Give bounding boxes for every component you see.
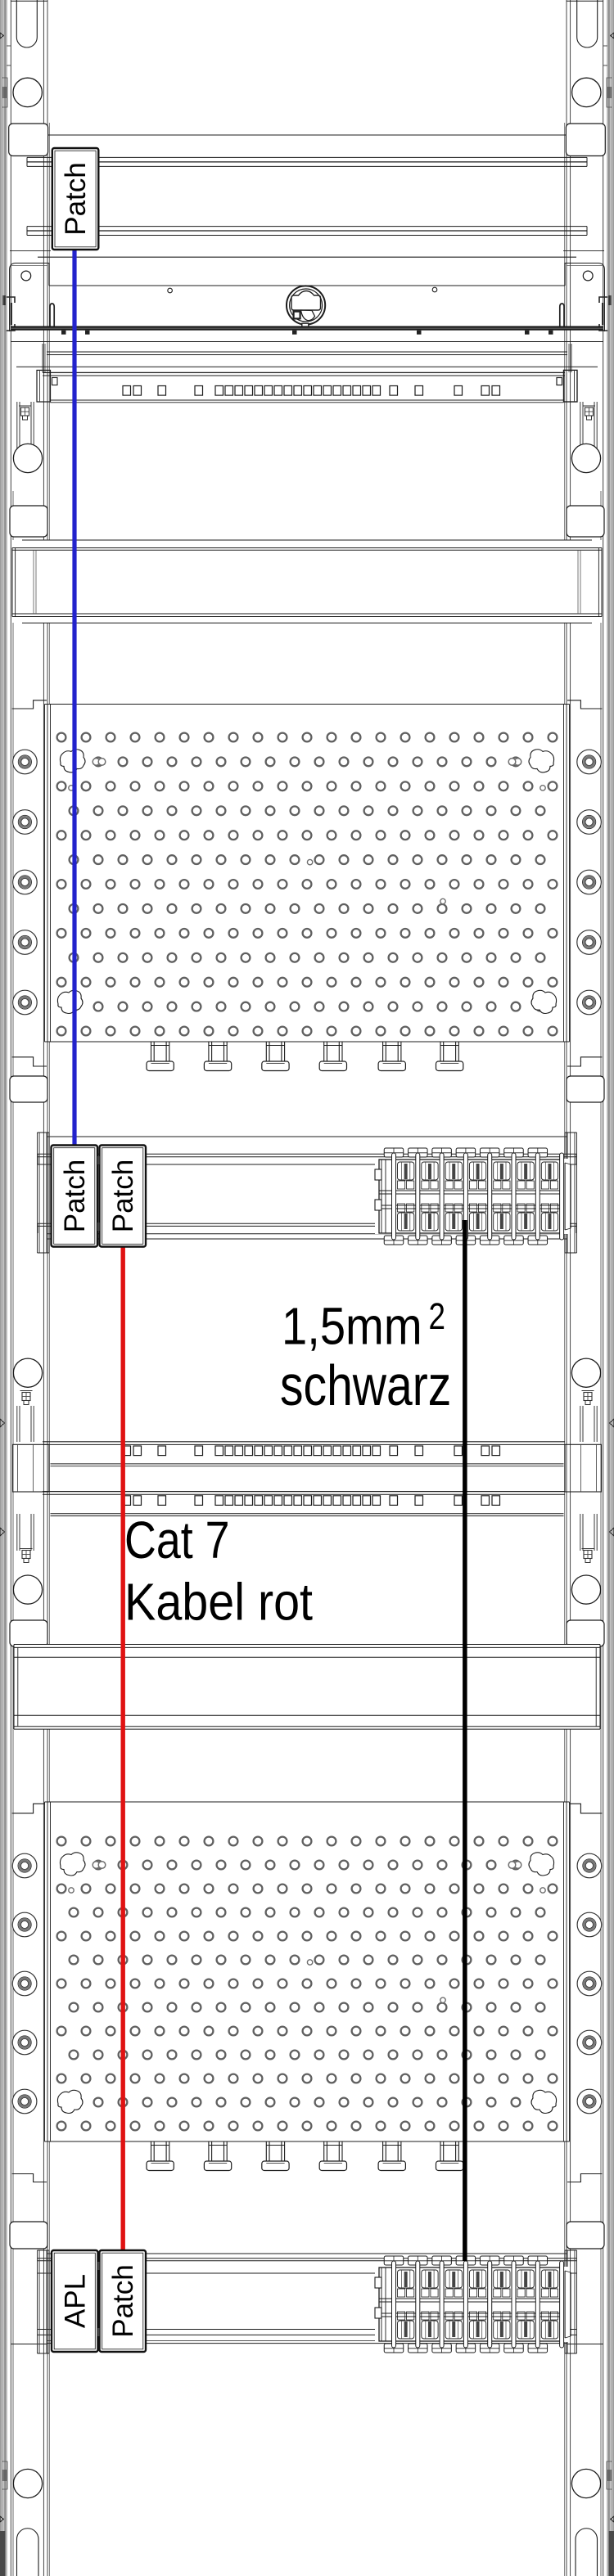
svg-text:Patch: Patch [60, 162, 92, 236]
svg-text:Patch: Patch [59, 1160, 91, 1233]
svg-text:2: 2 [429, 1295, 446, 1337]
svg-text:Cat 7: Cat 7 [124, 1511, 230, 1569]
svg-text:1,5mm: 1,5mm [282, 1296, 422, 1355]
svg-text:Kabel rot: Kabel rot [124, 1572, 313, 1631]
svg-text:APL: APL [59, 2274, 91, 2328]
svg-text:Patch: Patch [107, 2264, 139, 2338]
svg-text:Patch: Patch [107, 1160, 139, 1233]
svg-text:schwarz: schwarz [280, 1353, 451, 1417]
